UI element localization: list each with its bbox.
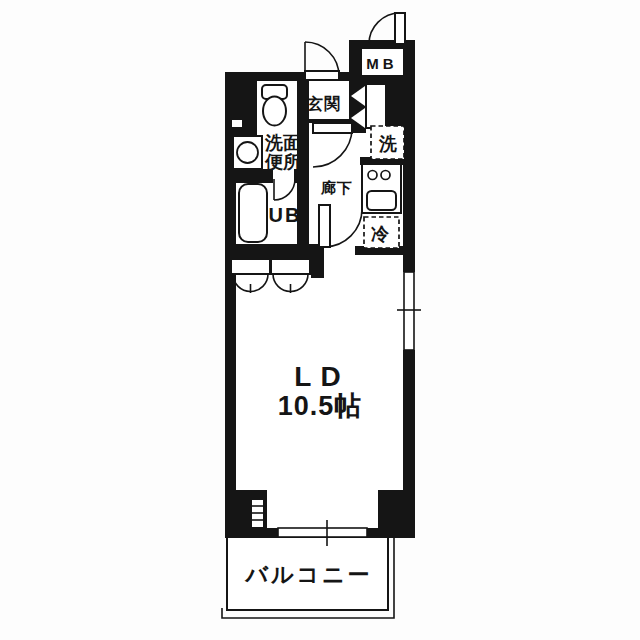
unit-bath-label: UB xyxy=(269,204,302,226)
pipe-space-icon xyxy=(252,500,263,527)
door-leaf xyxy=(305,71,339,80)
stove-burner-icon xyxy=(381,171,390,180)
door-leaf xyxy=(313,123,352,133)
washroom-label-line1: 洗面 xyxy=(264,133,301,153)
door-leaf xyxy=(395,13,405,44)
living-dining-label: LD xyxy=(294,361,349,392)
balcony-label: バルコニー xyxy=(243,562,372,587)
wall-vent-icon xyxy=(232,120,242,127)
window-pane xyxy=(278,528,367,537)
wall-bottomright-block xyxy=(378,490,412,538)
closet-box xyxy=(231,259,270,274)
toilet-bowl-icon xyxy=(263,97,286,126)
window-pane xyxy=(404,272,414,350)
living-dining-area-label: 10.5帖 xyxy=(278,391,363,421)
bathtub-icon xyxy=(239,184,267,242)
washbasin-icon xyxy=(237,142,258,163)
entrance-label: 玄関 xyxy=(306,95,341,112)
refrigerator-label: 冷 xyxy=(371,224,390,244)
floor-plan: MB 玄関 洗面 便所 UB 廊下 洗 冷 LD 10.5帖 バルコニー xyxy=(0,0,640,640)
washer-label: 洗 xyxy=(378,134,397,154)
hallway-label: 廊下 xyxy=(320,179,353,196)
wall-closet-step xyxy=(311,259,324,278)
washroom-label-line2: 便所 xyxy=(264,152,301,172)
closet-box xyxy=(271,259,310,274)
kitchen-sink-icon xyxy=(367,191,396,210)
meter-box-label: MB xyxy=(366,55,397,72)
stove-burner-icon xyxy=(368,171,377,180)
floor-plan-canvas: MB 玄関 洗面 便所 UB 廊下 洗 冷 LD 10.5帖 バルコニー xyxy=(0,0,640,640)
door-leaf xyxy=(319,205,330,247)
wall-ub-closet xyxy=(225,244,324,259)
entrance-door-slab xyxy=(366,84,386,128)
